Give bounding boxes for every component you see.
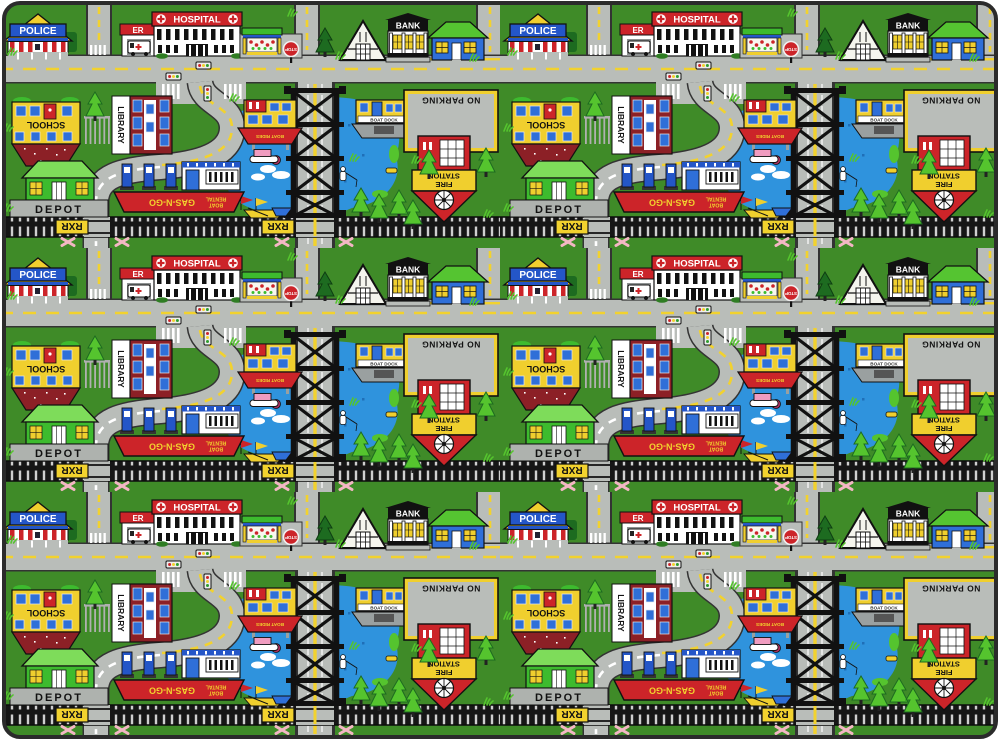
rug-tile [0, 492, 502, 736]
rug-tile [0, 248, 502, 492]
playmat-photo: RXR RXR [0, 0, 1000, 741]
rug-tile [0, 4, 502, 248]
playmat-rug: RXR RXR [0, 0, 1000, 741]
rug-tile [500, 248, 1000, 492]
rug-tile [500, 492, 1000, 736]
rug-tile [500, 4, 1000, 248]
